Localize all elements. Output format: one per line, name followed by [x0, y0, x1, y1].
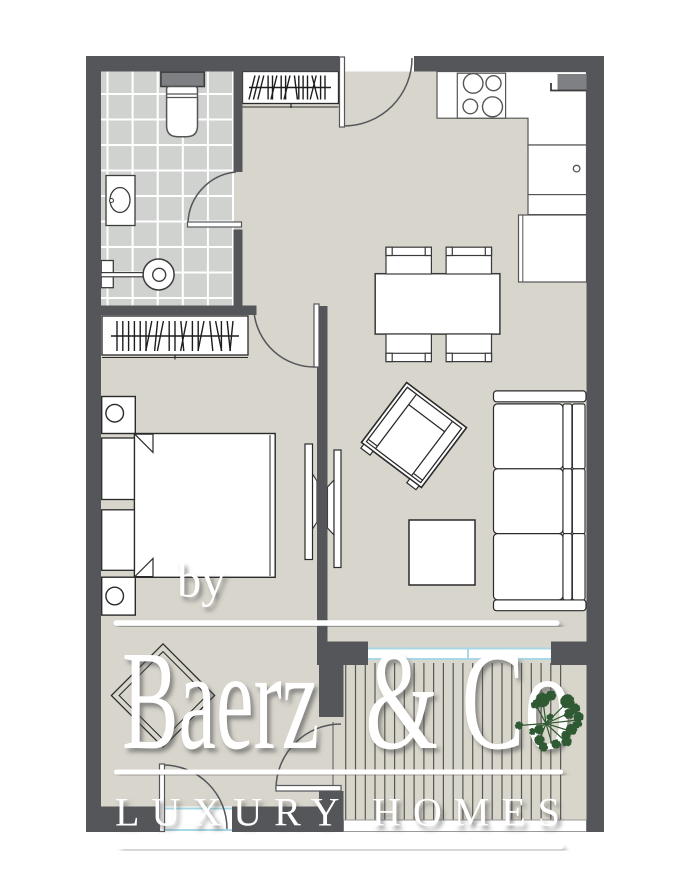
svg-text:LUXURY HOMES: LUXURY HOMES	[115, 790, 572, 835]
svg-text:Baerz: Baerz	[122, 623, 319, 780]
svg-text:by: by	[177, 555, 226, 608]
